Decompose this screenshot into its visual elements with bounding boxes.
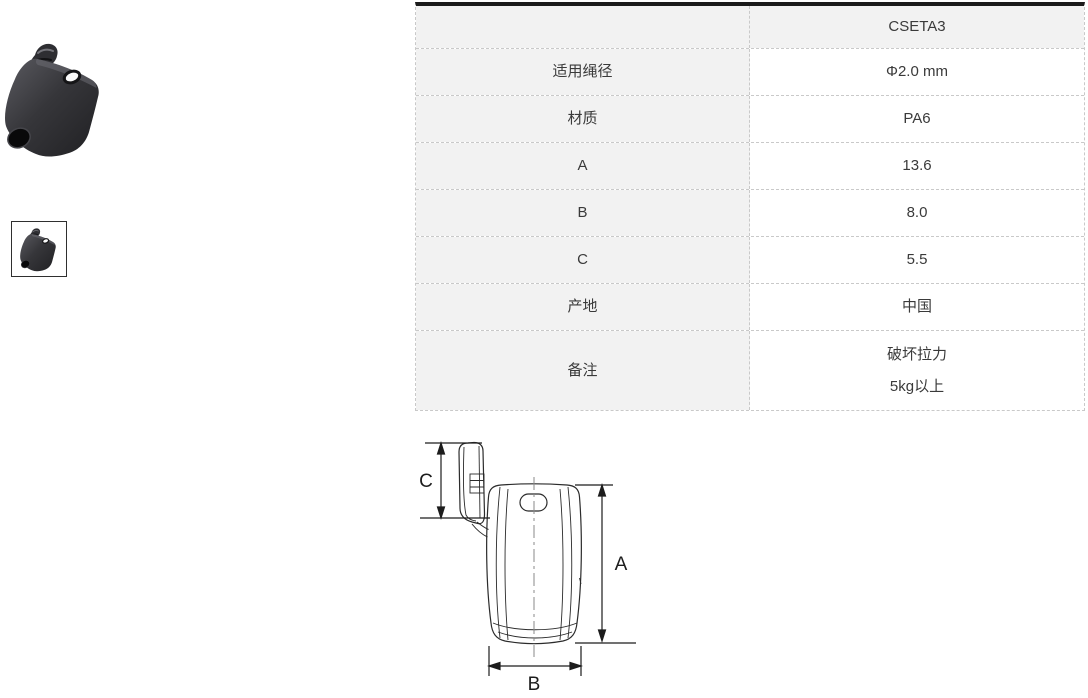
dim-label-c: C xyxy=(419,471,433,492)
model-name: CSETA3 xyxy=(750,6,1084,48)
spec-value-line2: 5kg以上 xyxy=(890,377,944,397)
spec-value: PA6 xyxy=(750,96,1084,142)
dimension-diagram: C A B xyxy=(410,430,650,693)
spec-label: A xyxy=(416,143,750,189)
dimension-lines xyxy=(420,443,636,676)
spec-label: 产地 xyxy=(416,284,750,330)
table-row: 备注 破坏拉力 5kg以上 xyxy=(416,330,1084,410)
table-row: 适用绳径 Φ2.0 mm xyxy=(416,48,1084,95)
table-row: B 8.0 xyxy=(416,189,1084,236)
dim-label-a: A xyxy=(615,554,628,575)
table-row: 材质 PA6 xyxy=(416,95,1084,142)
dimension-drawing-svg: C A B xyxy=(410,430,650,693)
cord-lock-image xyxy=(0,35,104,161)
table-row: C 5.5 xyxy=(416,236,1084,283)
spec-value: 8.0 xyxy=(750,190,1084,236)
product-spec-page: { "product": { "photo_name": "cord-lock-… xyxy=(0,0,1088,693)
thumbnail-image xyxy=(12,222,66,276)
spec-label: 适用绳径 xyxy=(416,49,750,95)
table-row: 产地 中国 xyxy=(416,283,1084,330)
table-row: A 13.6 xyxy=(416,142,1084,189)
product-thumbnail[interactable] xyxy=(11,221,67,277)
flap-side-view xyxy=(459,443,489,538)
spec-value-line1: 破坏拉力 xyxy=(887,345,947,365)
spec-label: C xyxy=(416,237,750,283)
spec-label: B xyxy=(416,190,750,236)
spec-table: CSETA3 适用绳径 Φ2.0 mm 材质 PA6 A 13.6 B 8.0 … xyxy=(415,2,1085,411)
dim-label-b: B xyxy=(528,674,541,693)
spec-value: 中国 xyxy=(750,284,1084,330)
spec-value: 13.6 xyxy=(750,143,1084,189)
table-header-row: CSETA3 xyxy=(416,6,1084,48)
spec-value: 5.5 xyxy=(750,237,1084,283)
product-photo xyxy=(0,35,104,161)
spec-value: 破坏拉力 5kg以上 xyxy=(750,331,1084,410)
spec-label: 材质 xyxy=(416,96,750,142)
spec-label: 备注 xyxy=(416,331,750,410)
spec-value: Φ2.0 mm xyxy=(750,49,1084,95)
header-empty-cell xyxy=(416,6,750,48)
